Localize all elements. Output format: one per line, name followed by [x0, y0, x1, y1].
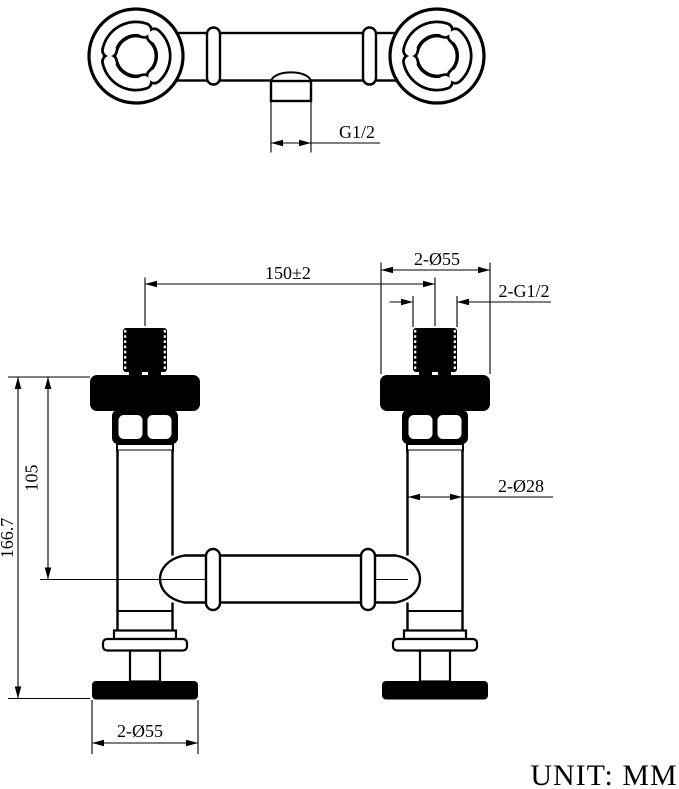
left-stem	[130, 651, 160, 682]
bar-collar-left	[207, 28, 220, 85]
left-valve	[90, 328, 200, 700]
right-bottom-lip	[393, 639, 477, 651]
handle-centers-label: 150±2	[265, 263, 311, 283]
right-base-plate	[382, 681, 488, 700]
inlet-thread-label: 2-G1/2	[499, 281, 550, 301]
unit-note: UNIT: MM	[530, 759, 677, 789]
left-base-plate	[92, 681, 198, 700]
pipe-collar-left	[206, 549, 220, 610]
front-view: 150±2 2-Ø55 2-G1/2 2-Ø28	[0, 249, 553, 754]
total-height-label: 166.7	[0, 518, 17, 559]
dim-inlet-thread: 2-G1/2	[390, 281, 552, 327]
left-threaded-stud	[123, 328, 167, 372]
right-body-cylinder	[408, 451, 463, 631]
dim-center-height: 105	[22, 377, 52, 580]
left-handwheel	[89, 9, 183, 103]
body-diameter-label: 2-Ø28	[498, 476, 544, 496]
left-body-cylinder	[118, 451, 173, 631]
left-bottom-lip	[103, 639, 187, 651]
top-view: G1/2	[89, 9, 484, 153]
base-diameter-label: 2-Ø55	[117, 721, 163, 741]
right-handwheel	[390, 9, 484, 103]
outlet-port	[271, 72, 311, 101]
dim-total-height: 166.7	[0, 377, 90, 699]
bar-collar-right	[363, 28, 376, 85]
pipe-collar-right	[361, 549, 375, 610]
left-top-flange	[90, 375, 200, 411]
right-stem	[420, 651, 450, 682]
right-threaded-stud	[413, 328, 457, 372]
dim-outlet-thread: G1/2	[271, 102, 380, 153]
right-valve	[380, 328, 490, 700]
flange-diameter-label: 2-Ø55	[414, 249, 460, 269]
right-top-flange	[380, 375, 490, 411]
dim-base-diameter: 2-Ø55	[92, 700, 198, 754]
outlet-thread-label: G1/2	[339, 122, 375, 142]
drawing-sheet: G1/2	[0, 0, 679, 789]
center-height-label: 105	[22, 465, 42, 492]
